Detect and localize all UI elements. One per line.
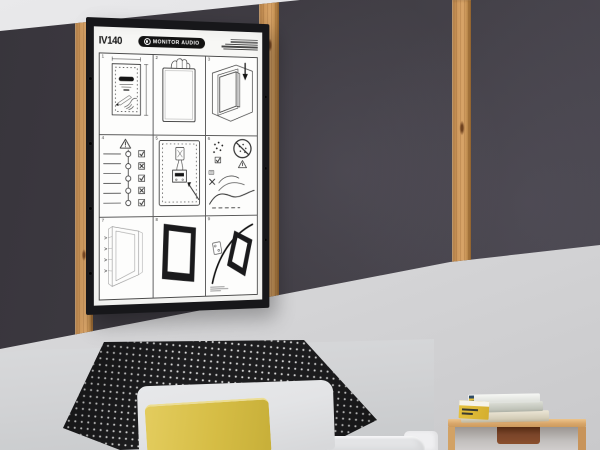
brand-roundel-icon	[144, 38, 151, 45]
insert-into-wall-drawing	[206, 57, 257, 136]
side-table	[448, 419, 586, 450]
frame-alignment-drawing	[100, 217, 153, 300]
book-yellow	[459, 400, 490, 420]
screw-dot	[89, 207, 91, 210]
speaker-handling-drawing	[154, 55, 205, 135]
contact-text-line	[223, 48, 257, 50]
instruction-sheet-frame: IV140 MONITOR AUDIO 1	[86, 17, 269, 315]
instruction-panel: 4	[100, 135, 154, 217]
table-leg-right	[578, 427, 586, 450]
armrest-cushion	[327, 436, 425, 450]
instruction-sheet: IV140 MONITOR AUDIO 1	[94, 26, 262, 305]
screw-dot	[264, 167, 266, 169]
book-title-bar	[462, 412, 473, 414]
screw-dot	[89, 77, 91, 80]
grille-frame-drawing	[154, 216, 205, 298]
instruction-panel: 2	[154, 55, 206, 136]
instruction-panel: 9	[206, 215, 257, 295]
screw-dot	[264, 238, 266, 240]
grille-fitting-drawing	[206, 215, 257, 295]
room-scene: IV140 MONITOR AUDIO 1	[0, 0, 600, 450]
contact-text-block	[218, 38, 258, 50]
seat-pillow-yellow	[144, 397, 271, 450]
book-yellow-band	[459, 400, 489, 406]
screw-dot	[264, 95, 266, 97]
book-title-bar	[462, 408, 478, 410]
brand-name: MONITOR AUDIO	[153, 39, 200, 46]
table-leg-left	[448, 427, 455, 450]
screw-dot	[89, 272, 91, 275]
wood-batten-right	[452, 0, 471, 450]
instruction-panel: 7	[100, 217, 154, 300]
instruction-panel: 6	[206, 136, 257, 216]
model-number: IV140	[99, 34, 122, 47]
instruction-panel: 1	[100, 53, 154, 135]
cutout-template-drawing	[100, 53, 153, 134]
screw-dot	[89, 142, 91, 145]
instruction-grid: 1 2	[99, 52, 258, 300]
brand-badge: MONITOR AUDIO	[138, 36, 205, 49]
sheet-header: IV140 MONITOR AUDIO	[99, 29, 258, 55]
no-debris-warning-drawing	[206, 136, 257, 215]
instruction-panel: 5	[154, 136, 206, 217]
instruction-panel: 3	[206, 57, 257, 137]
table-drawer	[497, 427, 540, 444]
rear-cable-drawing	[154, 136, 205, 216]
clamp-checklist-drawing	[100, 135, 153, 216]
instruction-panel: 8	[154, 216, 206, 298]
